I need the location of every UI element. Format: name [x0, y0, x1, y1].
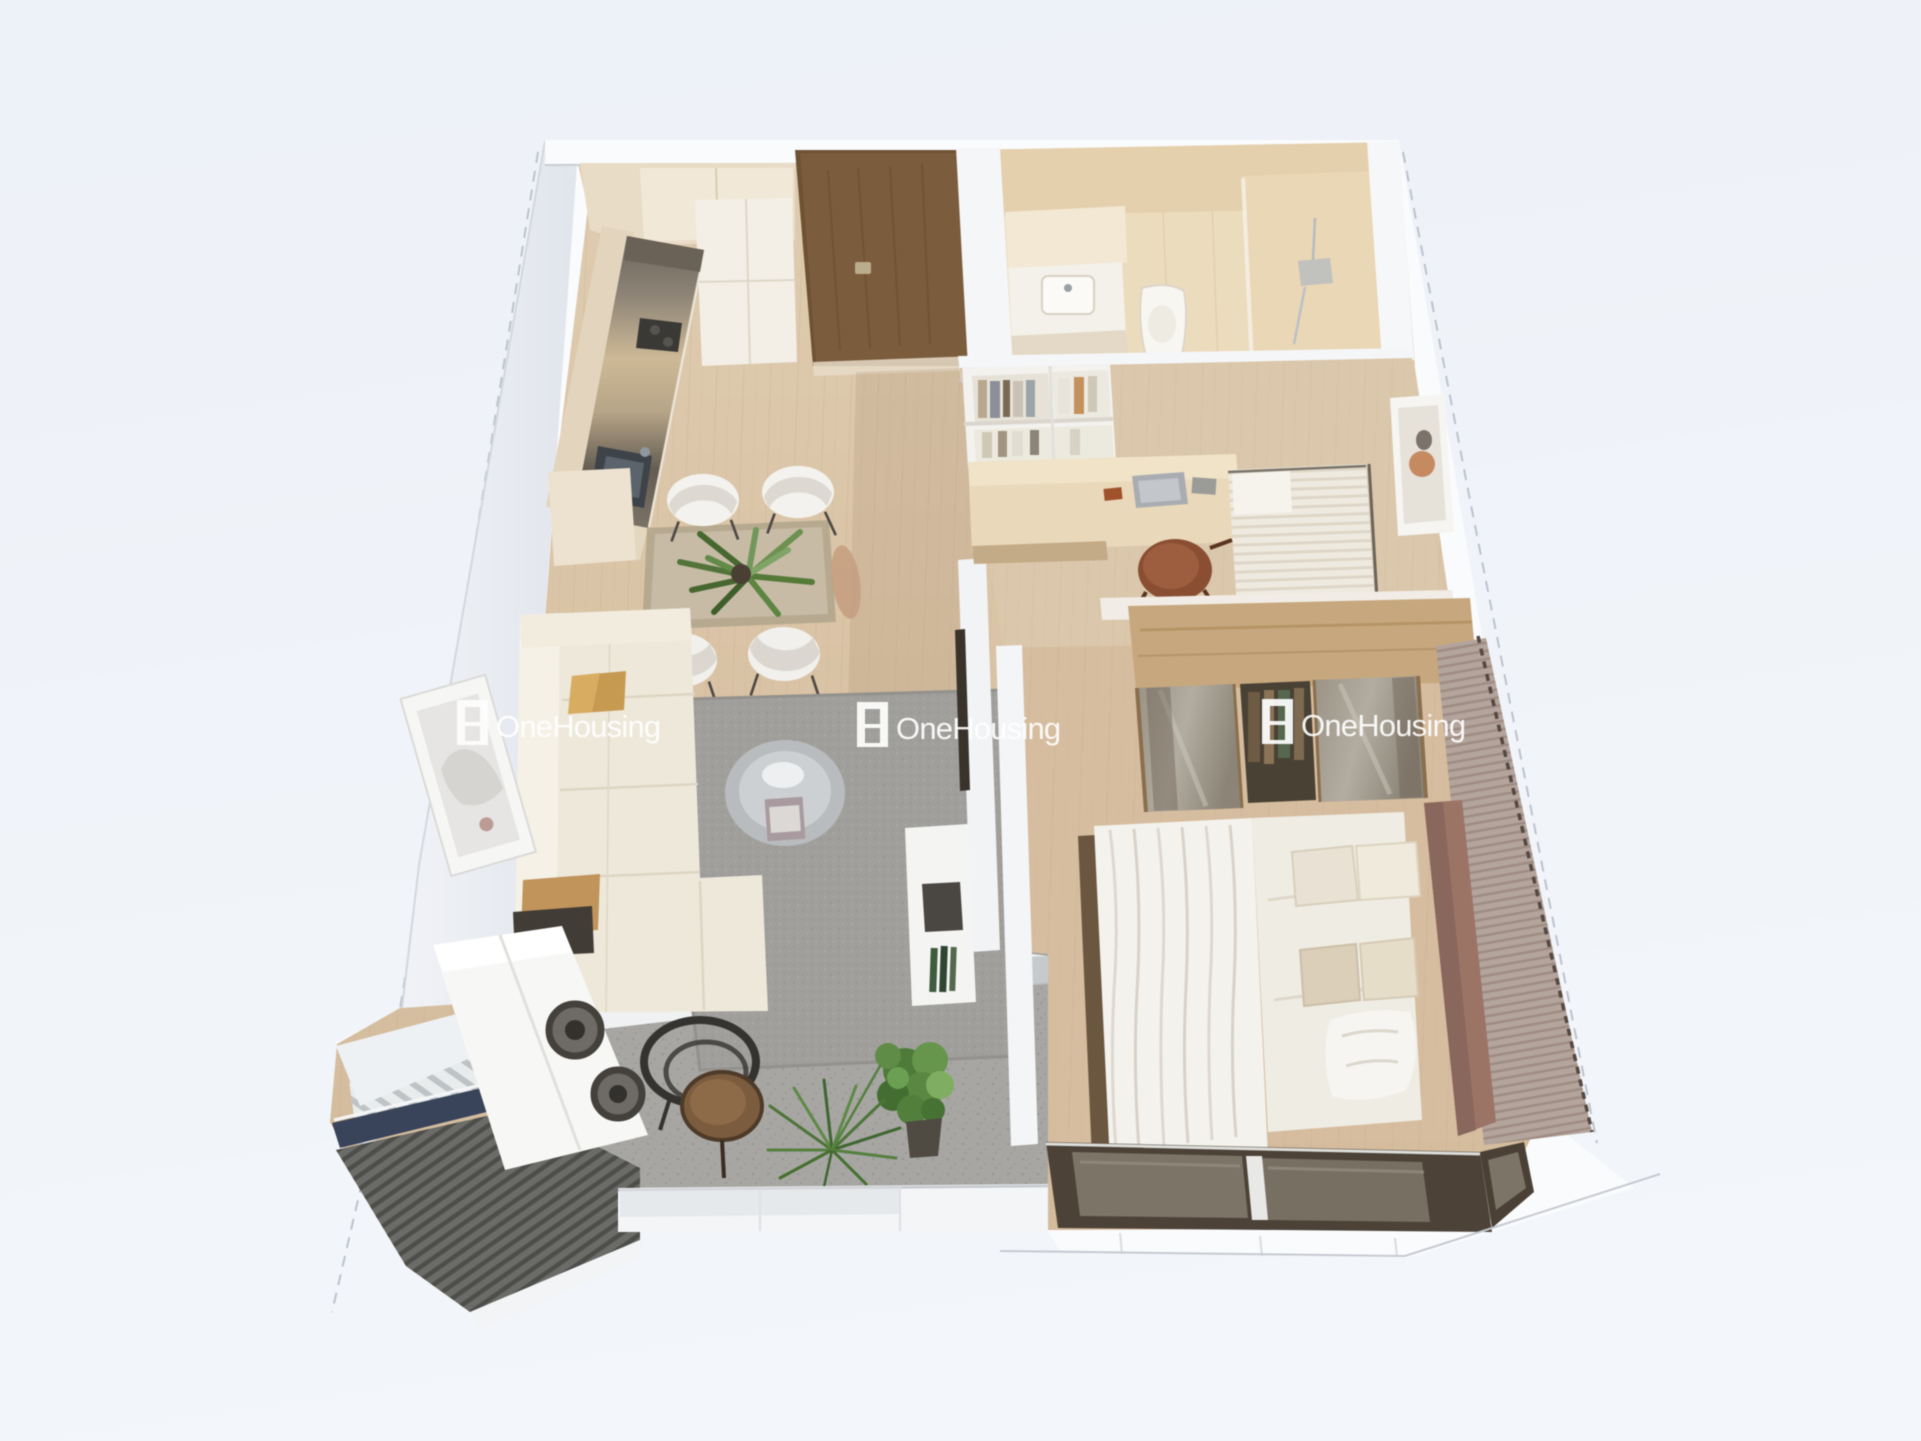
svg-text:OneHousing: OneHousing [1301, 708, 1465, 743]
svg-text:OneHousing: OneHousing [896, 711, 1060, 746]
svg-text:OneHousing: OneHousing [496, 709, 660, 744]
